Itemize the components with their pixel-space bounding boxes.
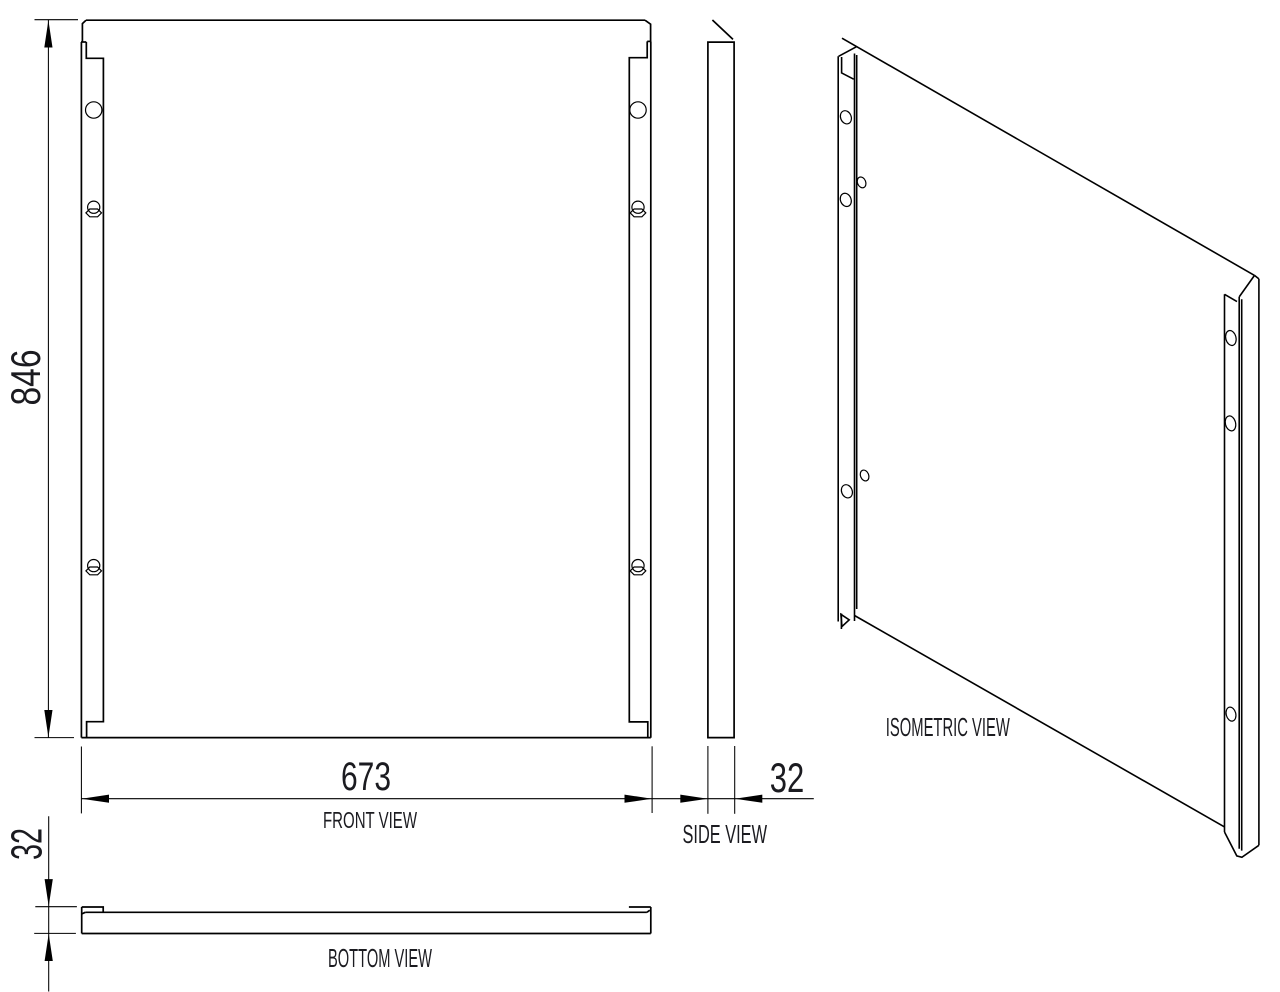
svg-text:673: 673 xyxy=(341,755,391,799)
svg-text:BOTTOM VIEW: BOTTOM VIEW xyxy=(328,943,432,973)
svg-text:32: 32 xyxy=(770,754,805,801)
svg-text:846: 846 xyxy=(2,350,49,406)
svg-text:ISOMETRIC VIEW: ISOMETRIC VIEW xyxy=(886,712,1010,742)
svg-text:SIDE VIEW: SIDE VIEW xyxy=(683,819,768,849)
svg-text:FRONT VIEW: FRONT VIEW xyxy=(323,807,417,833)
svg-text:32: 32 xyxy=(3,828,52,860)
